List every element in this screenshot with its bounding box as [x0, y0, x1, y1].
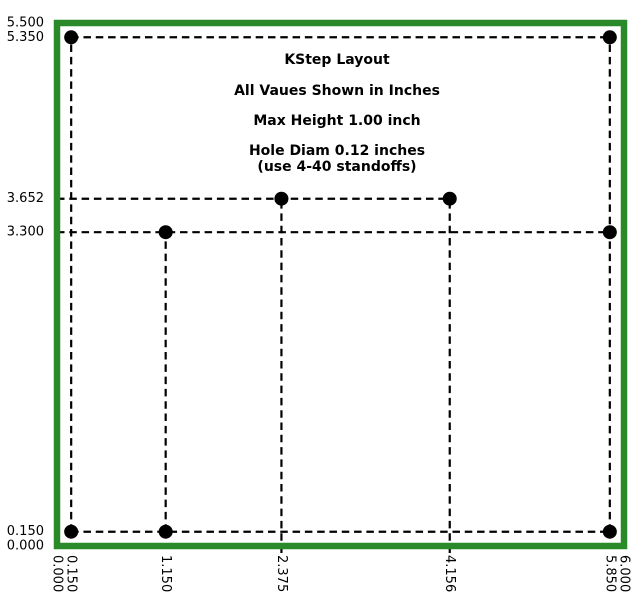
- x-tick-label: 6.000: [617, 555, 632, 592]
- x-tick-label: 4.156: [442, 555, 457, 592]
- x-tick-label: 1.150: [158, 555, 173, 592]
- y-tick-label: 5.500: [7, 16, 44, 31]
- y-tick-label: 3.652: [7, 191, 44, 206]
- annotation-text: Max Height 1.00 inch: [253, 113, 420, 129]
- mounting-hole: [603, 225, 617, 239]
- mounting-hole: [603, 30, 617, 44]
- kstep-layout-figure: 5.5005.3503.6523.3000.1500.0000.0000.150…: [0, 0, 644, 598]
- mounting-hole: [159, 225, 173, 239]
- x-tick-label: 0.150: [64, 555, 79, 592]
- annotation-text: All Vaues Shown in Inches: [234, 83, 440, 99]
- mounting-hole: [64, 525, 78, 539]
- y-tick-label: 3.300: [7, 225, 44, 240]
- x-tick-label: 2.375: [274, 555, 289, 592]
- mounting-hole: [159, 525, 173, 539]
- y-tick-label: 5.350: [7, 30, 44, 45]
- mounting-hole: [274, 192, 288, 206]
- mounting-hole: [443, 192, 457, 206]
- chart-title: KStep Layout: [284, 52, 390, 68]
- x-tick-label: 0.000: [50, 555, 65, 592]
- mounting-hole: [64, 30, 78, 44]
- mounting-hole: [603, 525, 617, 539]
- kstep-layout-chart: 5.5005.3503.6523.3000.1500.0000.0000.150…: [0, 0, 644, 598]
- board-outline: [57, 23, 624, 546]
- x-tick-label: 5.850: [602, 555, 617, 592]
- y-tick-label: 0.000: [7, 539, 44, 554]
- annotation-text: (use 4-40 standoffs): [257, 159, 416, 175]
- y-tick-label: 0.150: [7, 524, 44, 539]
- annotation-text: Hole Diam 0.12 inches: [249, 143, 425, 159]
